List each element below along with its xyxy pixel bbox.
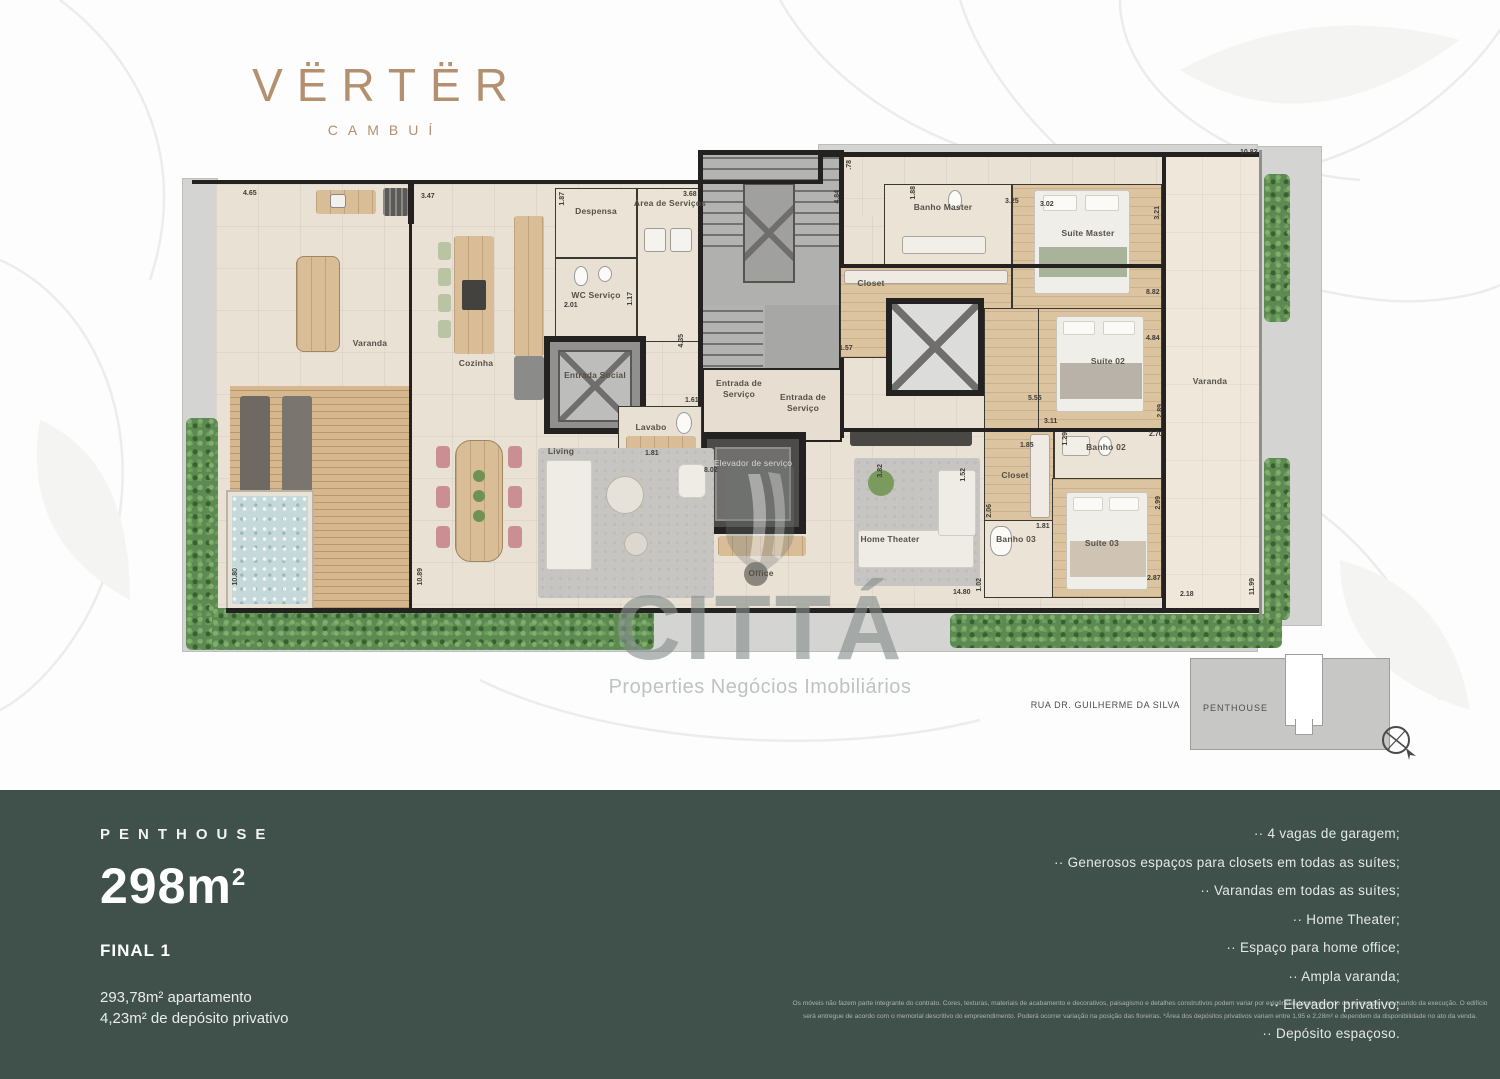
dim: 1.85 xyxy=(1020,442,1034,449)
dim: 2.06 xyxy=(986,504,993,518)
wall-suites-split xyxy=(840,428,1164,432)
label-banho-master: Banho Master xyxy=(910,202,976,213)
verter-logo: VËRTËR CAMBUÍ xyxy=(200,58,560,138)
dryer xyxy=(670,228,692,252)
dim: 11.99 xyxy=(1249,578,1256,595)
amenity-item: ·· Varandas em todas as suítes; xyxy=(980,881,1400,901)
dim: 1.81 xyxy=(645,450,659,457)
keyplan-notch-foot xyxy=(1295,719,1313,735)
dim: 2.18 xyxy=(1180,591,1194,598)
page: VËRTËR CAMBUÍ xyxy=(0,0,1500,1079)
cooktop xyxy=(462,280,486,310)
dim: 3.82 xyxy=(877,464,884,478)
kitchen-stool xyxy=(438,242,451,260)
dim: 3.47 xyxy=(421,193,435,200)
elevator-servico xyxy=(700,432,806,534)
label-despensa: Despensa xyxy=(556,206,636,217)
outdoor-dining-table xyxy=(296,256,340,352)
dim: 8.82 xyxy=(1146,289,1160,296)
room-area-servicos xyxy=(637,188,703,342)
shaft xyxy=(886,298,984,396)
armchair xyxy=(678,464,706,498)
label-suite-master: Suíte Master xyxy=(1046,228,1130,239)
dim: 10.80 xyxy=(232,568,239,586)
coffee-table xyxy=(606,476,644,514)
dim: 4.35 xyxy=(678,334,685,348)
kitchen-stool xyxy=(438,268,451,286)
label-home-theater: Home Theater xyxy=(840,534,940,545)
footer-disclaimer: Os móveis não fazem parte integrante do … xyxy=(790,998,1490,1023)
wall-varanda-right-boundary xyxy=(1162,156,1166,612)
kitchen-appliance xyxy=(514,356,544,400)
verter-logo-sub: CAMBUÍ xyxy=(200,122,560,138)
room-closet-suite02 xyxy=(984,308,1040,430)
hedge-right-top xyxy=(1264,174,1290,322)
dining-chair xyxy=(508,526,522,548)
dim: 1.87 xyxy=(559,192,566,206)
dim: 2.70 xyxy=(1149,431,1163,438)
dim: 10.83 xyxy=(1240,149,1258,156)
amenity-item: ·· Generosos espaços para closets em tod… xyxy=(980,853,1400,873)
keyplan: PENTHOUSE xyxy=(1190,658,1390,750)
tv-console xyxy=(850,430,972,446)
dim: 2.89 xyxy=(1157,404,1164,418)
amenity-item: ·· Home Theater; xyxy=(980,910,1400,930)
footer-area-deposit: 4,23m² de depósito privativo xyxy=(100,1010,288,1027)
amenity-item: ·· Depósito espaçoso. xyxy=(980,1024,1400,1044)
label-lavabo: Lavabo xyxy=(624,422,678,433)
dim: 4.84 xyxy=(1146,335,1160,342)
edge-varanda-right xyxy=(1259,150,1262,620)
centerpiece xyxy=(473,490,485,502)
dim: .78 xyxy=(846,160,853,170)
lounge-chair xyxy=(240,396,270,498)
floorplan: Varanda Cozinha Despensa Área de Serviço… xyxy=(178,140,1322,664)
wc-sink xyxy=(598,266,612,282)
dim: 1.88 xyxy=(910,186,917,200)
label-cozinha: Cozinha xyxy=(444,358,508,369)
dining-chair xyxy=(436,486,450,508)
dim: 3.68 xyxy=(683,191,697,198)
dim: 1.17 xyxy=(627,292,634,306)
dim: 4.65 xyxy=(243,190,257,197)
centerpiece xyxy=(473,470,485,482)
dim: 1.02 xyxy=(976,578,983,592)
keyplan-street-label: RUA DR. GUILHERME DA SILVA xyxy=(940,700,1180,710)
amenity-item: ·· Ampla varanda; xyxy=(980,967,1400,987)
kitchen-counter xyxy=(514,216,544,356)
label-entrada-social: Entrada Social xyxy=(558,370,632,381)
pool xyxy=(228,492,312,608)
dining-chair xyxy=(436,446,450,468)
footer: PENTHOUSE 298m2 FINAL 1 293,78m² apartam… xyxy=(0,790,1500,1079)
label-suite-03: Suíte 03 xyxy=(1072,538,1132,549)
label-varanda-left: Varanda xyxy=(338,338,402,349)
label-office: Office xyxy=(734,568,788,579)
keyplan-notch xyxy=(1285,654,1323,726)
kitchen-stool xyxy=(438,294,451,312)
dim: 2.87 xyxy=(1147,575,1161,582)
theater-chaise xyxy=(938,470,976,536)
dining-chair xyxy=(508,446,522,468)
label-entrada-servico-2: Entrada de Serviço xyxy=(770,392,836,413)
dim: 2.99 xyxy=(1155,496,1162,510)
label-closet-03: Closet xyxy=(990,470,1040,481)
centerpiece xyxy=(473,510,485,522)
keyplan-unit-label: PENTHOUSE xyxy=(1203,703,1268,713)
citta-tagline: Properties Negócios Imobiliários xyxy=(520,676,1000,699)
verter-logo-brand: VËRTËR xyxy=(200,58,560,112)
label-suite-02: Suíte 02 xyxy=(1078,356,1138,367)
label-area-servicos: Área de Serviços xyxy=(633,198,707,209)
dim: 3.21 xyxy=(1154,206,1161,220)
amenity-item: ·· 4 vagas de garagem; xyxy=(980,824,1400,844)
wc-toilet xyxy=(574,266,588,286)
footer-area-value: 298m xyxy=(100,858,232,914)
wall-top-right xyxy=(818,152,1262,157)
lavabo-sink xyxy=(676,412,692,434)
label-banho-02: Banho 02 xyxy=(1076,442,1136,453)
wall-step xyxy=(818,152,823,184)
wall-top-left xyxy=(192,180,820,184)
wall-mid-horizontal xyxy=(840,264,1164,268)
label-living: Living xyxy=(534,446,588,457)
dim: 2.01 xyxy=(564,302,578,309)
grill xyxy=(383,188,409,216)
hedge-bottom-right xyxy=(950,614,1282,648)
outdoor-counter xyxy=(316,190,376,214)
dim: 1.29 xyxy=(1062,432,1069,446)
label-closet-master: Closet xyxy=(844,278,898,289)
office-desk xyxy=(718,536,806,556)
dim: 10.89 xyxy=(417,568,424,586)
sofa xyxy=(546,460,592,570)
dim: 8.02 xyxy=(704,467,718,474)
dining-chair xyxy=(436,526,450,548)
label-elevador-servico: Elevador de serviço xyxy=(710,458,796,469)
footer-unit-area: 298m2 xyxy=(100,857,288,915)
label-entrada-servico-1: Entrada de Serviço xyxy=(706,378,772,399)
wall-varanda-boundary xyxy=(409,180,412,610)
dim: 5.55 xyxy=(1028,395,1042,402)
footer-unit-info: PENTHOUSE 298m2 FINAL 1 293,78m² apartam… xyxy=(100,826,288,1027)
kitchen-stool xyxy=(438,320,451,338)
side-table xyxy=(624,532,648,556)
dim: 3.02 xyxy=(1040,201,1054,208)
label-wc-servico: WC Serviço xyxy=(564,290,628,301)
washer xyxy=(644,228,666,252)
room-despensa xyxy=(555,188,637,258)
dim: 14.80 xyxy=(953,589,971,596)
dining-chair xyxy=(508,486,522,508)
dim: 3.11 xyxy=(1044,418,1057,425)
label-banho-03: Banho 03 xyxy=(986,534,1046,545)
amenity-item: ·· Espaço para home office; xyxy=(980,938,1400,958)
dim: 1.52 xyxy=(960,468,967,482)
dim: 1.61 xyxy=(685,397,699,404)
hedge-right-bottom xyxy=(1264,458,1290,620)
dim: 1.57 xyxy=(839,345,853,352)
footer-final-number: FINAL 1 xyxy=(100,941,288,961)
footer-area-exponent: 2 xyxy=(232,864,246,891)
lounge-chair xyxy=(282,396,312,498)
compass-icon xyxy=(1378,722,1422,762)
outdoor-sink xyxy=(330,194,346,208)
banho-master-counter xyxy=(902,236,986,254)
footer-unit-type: PENTHOUSE xyxy=(100,826,288,843)
label-varanda-right: Varanda xyxy=(1180,376,1240,387)
dim: 1.81 xyxy=(1036,523,1050,530)
dim: 4.84 xyxy=(834,190,841,204)
dim: 3.25 xyxy=(1005,198,1019,205)
hedge-bottom-left xyxy=(212,608,654,650)
footer-area-apartment: 293,78m² apartamento xyxy=(100,989,288,1006)
wall-bottom xyxy=(226,608,1262,613)
